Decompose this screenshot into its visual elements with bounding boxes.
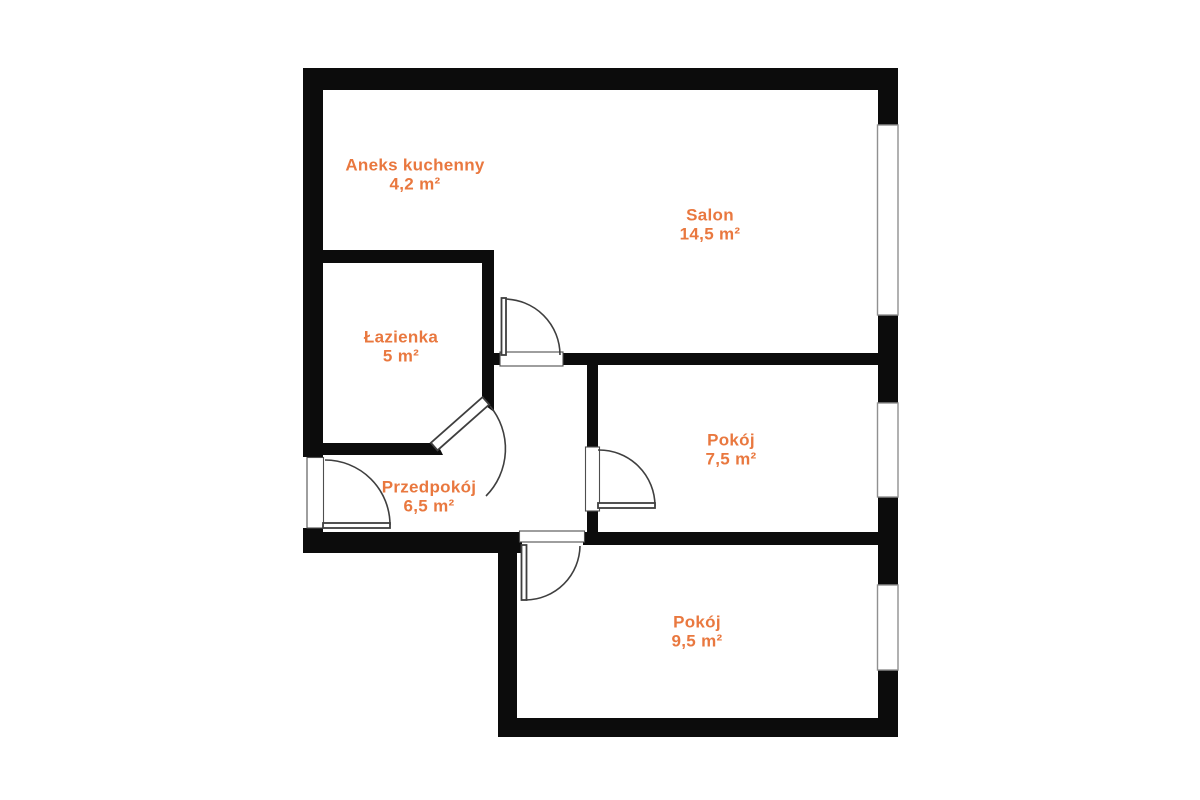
salon-door-threshold	[500, 352, 563, 366]
room-name: Aneks kuchenny	[345, 157, 484, 176]
entry-door-leaf	[323, 523, 390, 528]
room2-door-threshold	[520, 531, 585, 542]
wall-right-seg-b	[878, 315, 898, 403]
salon-door-swing-arc	[504, 299, 560, 355]
room-area: 7,5 m²	[706, 450, 757, 469]
wall-salon-bottom-left	[482, 353, 502, 365]
floor-plan-drawing	[0, 0, 1200, 800]
room-name: Salon	[680, 207, 741, 226]
window-room1	[878, 403, 899, 497]
wall-bottom-hallway	[303, 532, 522, 553]
room2-door	[520, 531, 585, 600]
salon-door-leaf	[502, 298, 507, 355]
wall-right-seg-a	[878, 68, 898, 125]
entry-door-threshold	[307, 458, 324, 529]
room1-door	[586, 447, 656, 511]
wall-kitchen-bathroom	[303, 250, 494, 263]
room-name: Przedpokój	[382, 479, 477, 498]
room-name: Pokój	[706, 432, 757, 451]
floor-plan: Aneks kuchenny 4,2 m² Salon 14,5 m² Łazi…	[0, 0, 1200, 800]
bathroom-door-swing-arc	[486, 406, 505, 496]
wall-room1-left-lower	[587, 510, 598, 532]
window-salon	[878, 125, 899, 315]
room2-door-leaf	[522, 545, 527, 600]
room1-door-threshold	[586, 447, 600, 511]
wall-left-lower-section	[498, 553, 517, 737]
room-area: 14,5 m²	[680, 225, 741, 244]
room-name: Pokój	[672, 614, 723, 633]
room-area: 4,2 m²	[345, 175, 484, 194]
room2-door-swing-arc	[526, 546, 580, 600]
room-name: Łazienka	[364, 329, 438, 348]
room-label-przedpokoj: Przedpokój 6,5 m²	[382, 479, 477, 516]
entry-door	[307, 458, 390, 529]
room-area: 6,5 m²	[382, 497, 477, 516]
wall-right-seg-d	[878, 670, 898, 737]
bathroom-door-leaf	[431, 397, 489, 450]
wall-room1-left-upper	[587, 365, 598, 448]
room-label-aneks-kuchenny: Aneks kuchenny 4,2 m²	[345, 157, 484, 194]
room1-door-swing-arc	[598, 450, 655, 506]
wall-right-seg-c	[878, 497, 898, 585]
wall-bathroom-right	[482, 250, 494, 403]
room1-door-leaf	[598, 503, 655, 508]
room-label-salon: Salon 14,5 m²	[680, 207, 741, 244]
room-area: 5 m²	[364, 347, 438, 366]
room-area: 9,5 m²	[672, 632, 723, 651]
room-label-pokoj-1: Pokój 7,5 m²	[706, 432, 757, 469]
room-label-pokoj-2: Pokój 9,5 m²	[672, 614, 723, 651]
wall-salon-bottom-right	[562, 353, 878, 365]
window-room2	[878, 585, 899, 670]
salon-door	[500, 298, 563, 366]
wall-room-divider	[583, 532, 878, 545]
wall-bathroom-bottom	[323, 443, 437, 455]
entry-door-swing-arc	[325, 460, 390, 525]
wall-top	[303, 68, 898, 90]
room-label-lazienka: Łazienka 5 m²	[364, 329, 438, 366]
wall-bottom	[498, 718, 898, 737]
